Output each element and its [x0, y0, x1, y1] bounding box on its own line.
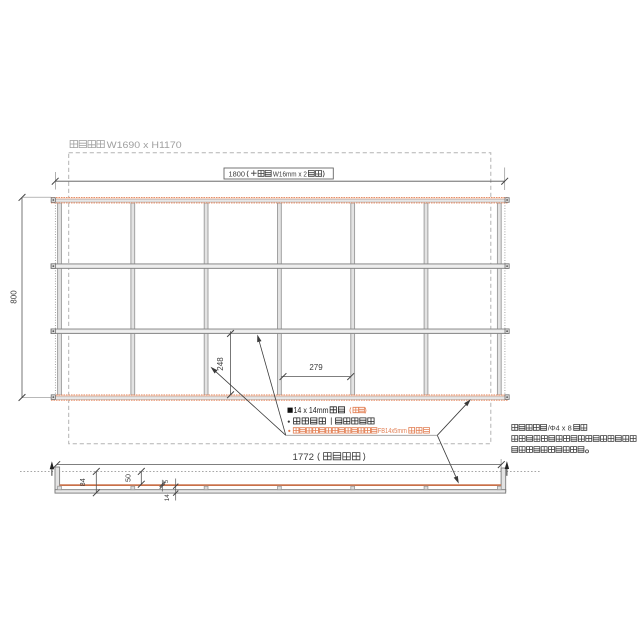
- svg-text:5: 5: [163, 479, 170, 483]
- svg-text:248: 248: [216, 357, 225, 371]
- svg-text:W16mm x 2: W16mm x 2: [273, 170, 307, 179]
- svg-text:800: 800: [10, 290, 19, 304]
- svg-text:/Φ4 x 8: /Φ4 x 8: [548, 424, 572, 433]
- svg-text:W1690 x H1170: W1690 x H1170: [107, 140, 182, 150]
- svg-text:14: 14: [164, 494, 171, 501]
- svg-text:1772: 1772: [293, 452, 315, 462]
- svg-text:279: 279: [309, 363, 323, 372]
- svg-text:84: 84: [78, 478, 87, 486]
- svg-text:50: 50: [124, 474, 133, 482]
- svg-text:FB14x5mm: FB14x5mm: [378, 428, 407, 435]
- svg-text:14 x 14mm: 14 x 14mm: [294, 406, 329, 415]
- svg-text:1800: 1800: [229, 170, 246, 179]
